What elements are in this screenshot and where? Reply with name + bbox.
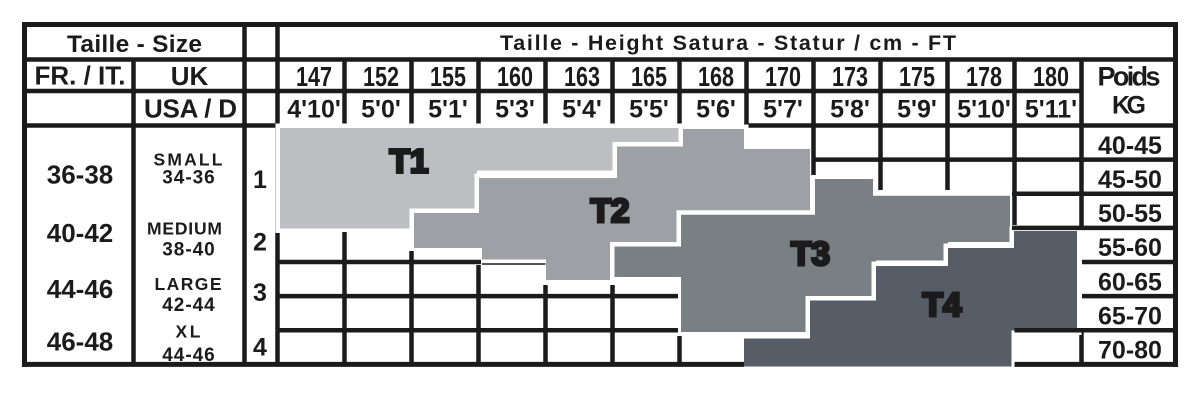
svg-text:147: 147 xyxy=(296,61,332,92)
svg-text:152: 152 xyxy=(363,61,399,92)
svg-text:42-44: 42-44 xyxy=(162,295,215,316)
svg-text:5'8': 5'8' xyxy=(830,96,870,124)
svg-text:175: 175 xyxy=(899,61,935,92)
svg-text:Poids: Poids xyxy=(1098,62,1161,92)
svg-text:34-36: 34-36 xyxy=(162,168,215,189)
svg-text:170: 170 xyxy=(765,61,801,92)
svg-text:SMALL: SMALL xyxy=(154,150,223,170)
svg-text:173: 173 xyxy=(832,61,868,92)
svg-text:T3: T3 xyxy=(791,236,830,273)
svg-text:38-40: 38-40 xyxy=(162,240,215,261)
svg-text:5'3': 5'3' xyxy=(495,96,535,124)
svg-text:Taille - Size: Taille - Size xyxy=(67,31,202,58)
svg-text:165: 165 xyxy=(631,61,667,92)
svg-text:70-80: 70-80 xyxy=(1098,337,1162,365)
svg-text:5'10': 5'10' xyxy=(957,96,1011,124)
svg-text:5'4': 5'4' xyxy=(562,96,602,124)
svg-text:65-70: 65-70 xyxy=(1098,303,1162,331)
svg-text:44-46: 44-46 xyxy=(47,274,114,304)
svg-text:180: 180 xyxy=(1033,61,1069,92)
svg-text:3: 3 xyxy=(253,279,267,307)
svg-text:T1: T1 xyxy=(389,144,428,181)
svg-text:5'7': 5'7' xyxy=(763,96,803,124)
svg-text:168: 168 xyxy=(698,61,734,92)
svg-text:40-42: 40-42 xyxy=(47,218,114,248)
svg-text:160: 160 xyxy=(497,61,533,92)
svg-text:Taille - Height Satura - Statu: Taille - Height Satura - Statur / cm - F… xyxy=(500,31,956,55)
svg-text:55-60: 55-60 xyxy=(1098,234,1162,262)
svg-text:4: 4 xyxy=(253,334,267,362)
svg-text:T2: T2 xyxy=(590,193,629,230)
svg-text:44-46: 44-46 xyxy=(162,345,215,366)
svg-text:40-45: 40-45 xyxy=(1098,132,1162,160)
svg-text:T4: T4 xyxy=(922,287,961,324)
svg-text:178: 178 xyxy=(966,61,1002,92)
svg-text:2: 2 xyxy=(253,229,267,257)
svg-text:50-55: 50-55 xyxy=(1098,200,1162,228)
svg-text:45-50: 45-50 xyxy=(1098,166,1162,194)
svg-text:5'1': 5'1' xyxy=(428,96,468,124)
svg-text:1: 1 xyxy=(253,166,267,194)
svg-text:MEDIUM: MEDIUM xyxy=(147,219,222,239)
svg-text:5'11': 5'11' xyxy=(1025,96,1077,124)
svg-text:5'5': 5'5' xyxy=(629,96,669,124)
svg-text:155: 155 xyxy=(430,61,466,92)
svg-text:LARGE: LARGE xyxy=(155,274,222,294)
svg-text:KG: KG xyxy=(1112,92,1146,120)
svg-text:5'0': 5'0' xyxy=(361,96,401,124)
svg-text:4'10': 4'10' xyxy=(287,96,341,124)
svg-text:163: 163 xyxy=(564,61,600,92)
svg-text:USA / D: USA / D xyxy=(144,94,237,124)
svg-text:FR. / IT.: FR. / IT. xyxy=(35,61,126,91)
svg-text:5'9': 5'9' xyxy=(897,96,937,124)
svg-text:60-65: 60-65 xyxy=(1098,268,1162,296)
svg-text:46-48: 46-48 xyxy=(47,327,114,357)
svg-text:UK: UK xyxy=(171,61,209,91)
svg-text:36-38: 36-38 xyxy=(47,160,114,190)
svg-text:5'6': 5'6' xyxy=(696,96,736,124)
